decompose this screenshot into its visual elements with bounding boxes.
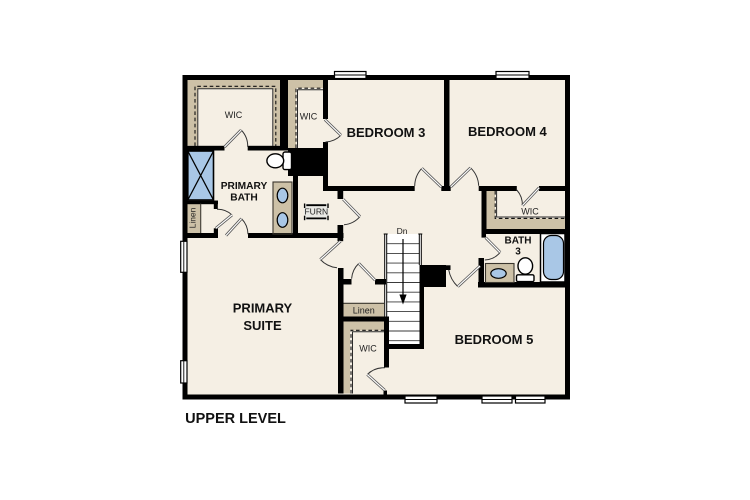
svg-text:3: 3 [515, 247, 521, 258]
svg-text:WIC: WIC [359, 344, 377, 354]
svg-text:FURN: FURN [304, 207, 328, 217]
svg-text:UPPER LEVEL: UPPER LEVEL [185, 411, 286, 427]
svg-text:BATH: BATH [230, 193, 258, 204]
svg-text:BEDROOM 5: BEDROOM 5 [455, 332, 534, 347]
svg-text:Dn: Dn [397, 226, 408, 236]
svg-text:WIC: WIC [521, 207, 539, 217]
svg-text:BEDROOM 3: BEDROOM 3 [347, 125, 426, 140]
svg-text:PRIMARY: PRIMARY [233, 301, 293, 316]
svg-text:PRIMARY: PRIMARY [221, 181, 268, 192]
svg-text:SUITE: SUITE [243, 318, 282, 333]
svg-text:WIC: WIC [225, 110, 243, 120]
svg-text:BEDROOM 4: BEDROOM 4 [468, 124, 548, 139]
svg-text:WIC: WIC [300, 112, 318, 122]
svg-text:BATH: BATH [504, 236, 531, 247]
svg-text:Linen: Linen [188, 207, 198, 228]
svg-text:Linen: Linen [353, 305, 375, 315]
